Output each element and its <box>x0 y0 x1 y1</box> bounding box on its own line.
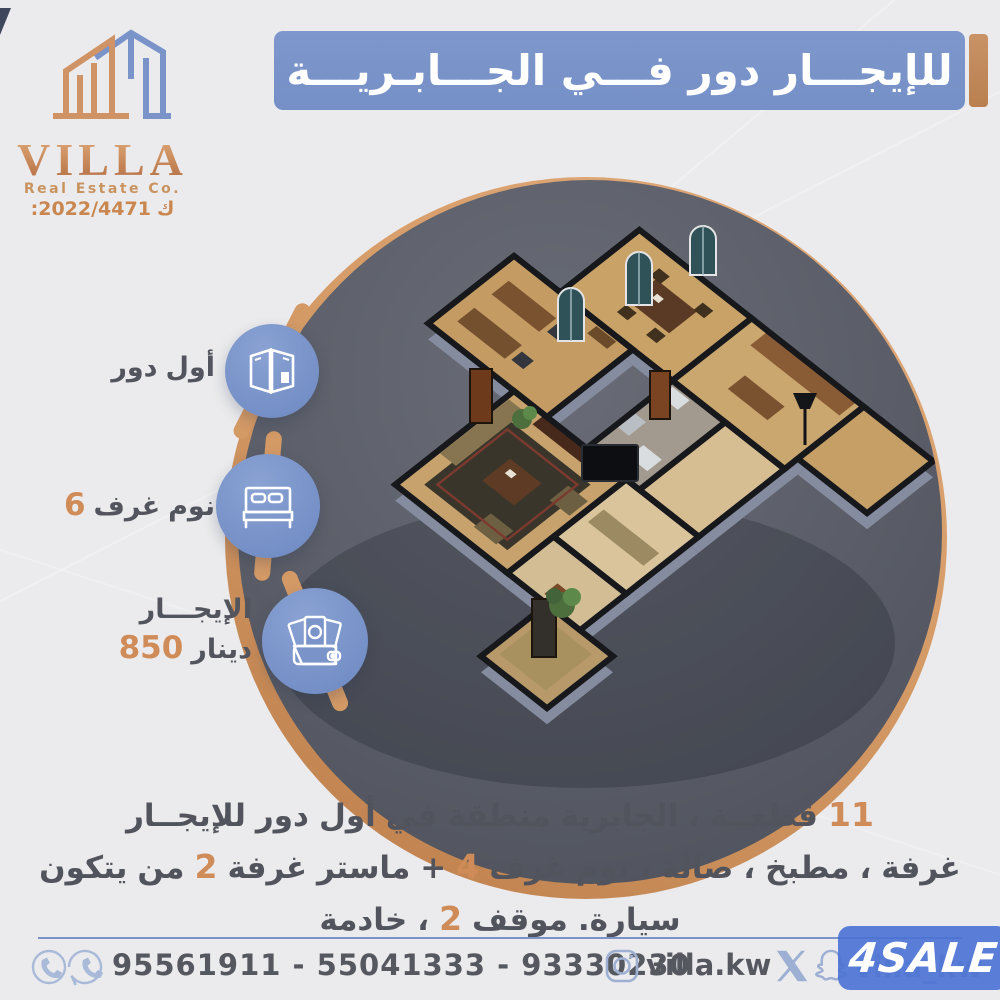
text-token: دينار <box>191 634 252 665</box>
text-token: في <box>386 798 438 834</box>
text-token: الجابرية <box>561 798 679 834</box>
forsale-badge[interactable]: 4SALE <box>838 926 1000 990</box>
floorplan-circle <box>238 180 942 884</box>
buildings-icon <box>36 16 176 136</box>
text-token: غرف <box>489 850 565 886</box>
feature-label-bedrooms: 6غرفنوم <box>15 487 215 523</box>
text-token: سيارة. <box>578 902 681 938</box>
feature-label-floor: دورأول <box>20 352 215 383</box>
license-number: 2022/4471:ك <box>0 198 205 220</box>
text-token: ، <box>417 902 429 938</box>
text-token: غرفة <box>881 850 961 886</box>
banner-accent-bar <box>969 34 988 107</box>
title-banner: للإيجـــار دور فـــي الجـــابـريـــة <box>274 31 965 110</box>
money-icon <box>282 608 348 674</box>
instagram-icon[interactable] <box>604 948 640 984</box>
x-twitter-icon[interactable] <box>776 950 808 982</box>
description-line: خادمة،2موقفسيارة. <box>25 899 975 938</box>
poster-canvas: VILLA Real Estate Co. 2022/4471:ك للإيجـ… <box>0 0 1000 1000</box>
text-token: نوم <box>168 491 215 522</box>
text-token: ، <box>688 798 700 834</box>
text-token: خادمة <box>319 902 407 938</box>
forsale-badge-label: 4SALE <box>846 934 1000 982</box>
text-token: دور <box>256 798 309 834</box>
text-token: أول <box>319 798 376 834</box>
text-token: أول <box>166 352 215 383</box>
text-token: ، <box>743 850 755 886</box>
text-token: من <box>137 850 184 886</box>
feature-circle-rent <box>262 588 368 694</box>
text-token: صالة <box>661 850 733 886</box>
text-token: 6 <box>64 487 86 523</box>
property-description: للإيجــاردورأولفيمنطقةالجابرية،قطعــة11 … <box>25 795 975 951</box>
text-token: ماستر <box>317 850 410 886</box>
logo-name: VILLA <box>0 133 205 186</box>
description-line: يتكونمن2غرفةماستر+4غرفنوم،صالة،مطبخ،غرفة <box>25 847 975 886</box>
text-token: 850 <box>119 630 184 666</box>
footer-divider <box>38 937 962 939</box>
text-token: ، <box>640 850 652 886</box>
feature-circle-floor <box>225 324 319 418</box>
contact-icons <box>28 944 112 990</box>
text-token: غرف <box>94 491 161 522</box>
text-token: غرفة <box>227 850 307 886</box>
instagram-handle[interactable]: villa.kw <box>646 948 771 982</box>
floorplan-3d-render <box>238 213 942 853</box>
text-token: ك <box>157 198 174 220</box>
banner-title: للإيجـــار دور فـــي الجـــابـريـــة <box>286 46 952 95</box>
text-token: مطبخ <box>765 850 849 886</box>
feature-label-rent-amount: 850دينار <box>40 630 252 666</box>
text-token: يتكون <box>39 850 127 886</box>
text-token: ، <box>860 850 872 886</box>
phone-icon <box>33 951 65 983</box>
feature-circle-bedrooms <box>216 454 320 558</box>
feature-label-rent-title: الإيجـــار <box>40 594 252 625</box>
text-token: 2 <box>194 847 217 886</box>
text-token: + <box>420 850 446 886</box>
bed-icon <box>236 474 300 538</box>
text-token: قطعــة <box>710 798 818 834</box>
description-line: للإيجــاردورأولفيمنطقةالجابرية،قطعــة11 <box>25 795 975 834</box>
text-token: موقف <box>472 902 568 938</box>
text-token: 11 <box>828 795 874 834</box>
text-token: 2 <box>439 899 462 938</box>
text-token: الإيجـــار <box>140 594 252 625</box>
text-token: 4 <box>456 847 479 886</box>
text-token: منطقة <box>447 798 550 834</box>
text-token: 2022/4471: <box>31 198 151 220</box>
text-token: نوم <box>576 850 630 886</box>
text-token: دور <box>111 352 157 383</box>
text-token: للإيجــار <box>126 798 246 834</box>
logo-subtitle: Real Estate Co. <box>0 181 205 197</box>
floorplan-icon <box>243 342 301 400</box>
company-logo: VILLA Real Estate Co. 2022/4471:ك <box>0 0 205 225</box>
